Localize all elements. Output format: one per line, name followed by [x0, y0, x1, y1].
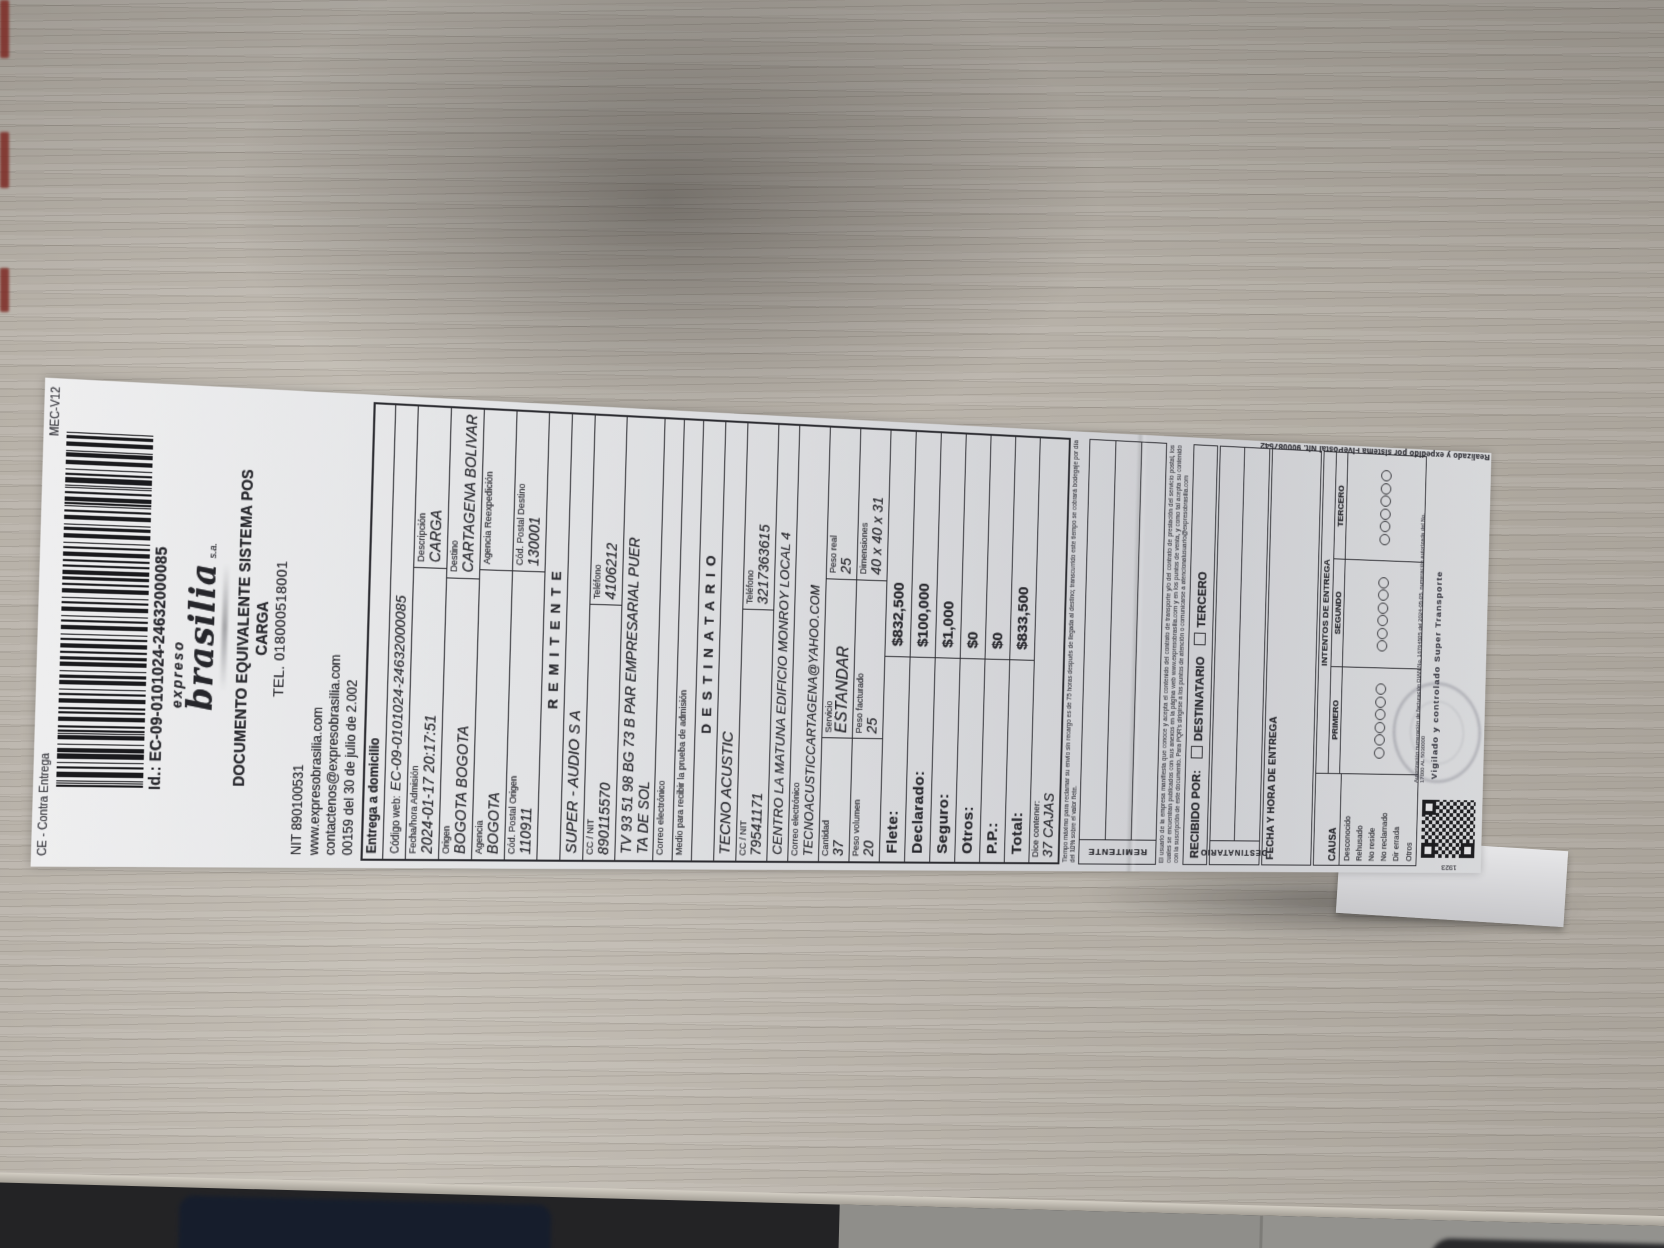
company-info: NIT 890100531 www.expresobrasilia.com co…	[288, 391, 369, 855]
brand-logo-suffix: s.a.	[207, 543, 219, 559]
sender-signature-label: REMITENTE	[1088, 846, 1147, 857]
cause-column: CAUSA Desconocido Rehusado No reside No …	[1313, 773, 1417, 865]
billed-weight-value: 25	[864, 717, 880, 733]
signature-lines	[1210, 447, 1269, 841]
service-value: ESTANDAR	[833, 645, 852, 733]
mark-circles	[1345, 453, 1425, 562]
cause-item: Otros	[1402, 775, 1417, 861]
cause-header: CAUSA	[1313, 774, 1341, 865]
delivery-datetime-box: FECHA Y HORA DE ENTREGA	[1261, 448, 1322, 865]
attempt-col-segundo: SEGUNDO	[1331, 560, 1423, 670]
brand-logo: expreso brasilia s.a.	[164, 385, 234, 868]
description-value: CARGA	[426, 509, 445, 562]
received-by-label: RECIBIDO POR:	[1188, 770, 1203, 858]
admission-value: 2024-01-17 20:17:51	[418, 714, 439, 854]
origin-value: BOGOTA BOGOTA	[451, 725, 472, 854]
sender-phone-value: 4106212	[602, 542, 620, 600]
delivery-attempts-table: CAUSA Desconocido Rehusado No reside No …	[1312, 451, 1426, 866]
shipment-table: Entrega a domicilio Código web: EC-09-01…	[360, 402, 1070, 864]
vol-weight-value: 20	[860, 840, 876, 856]
checkbox-icon	[1193, 632, 1205, 645]
recipient-signature-label: DESTINATARIO	[1200, 848, 1267, 858]
quantity-value: 37	[830, 840, 846, 856]
photo-scene: CE - Contra Entrega MEC-V12 Id.: EC-09-0…	[0, 0, 1664, 1248]
sender-ccnit-value: 890115570	[595, 782, 614, 855]
form-version-label: MEC-V12	[48, 386, 63, 436]
signature-lines	[1080, 440, 1166, 840]
checkbox-destinatario: DESTINATARIO	[1190, 656, 1206, 758]
recipient-phone-value: 3217363615	[754, 524, 772, 605]
agency-value: BOGOTA	[484, 792, 503, 854]
doc-type-label: CE - Contra Entrega	[36, 753, 53, 856]
dark-object-under-desk	[177, 1195, 552, 1248]
sender-signature-box: REMITENTE	[1078, 439, 1167, 865]
recipient-ccnit-value: 79541171	[747, 792, 765, 855]
barcode-icon	[56, 431, 153, 788]
web-code-value: EC-09-0101024-24632000085	[387, 595, 409, 791]
red-edge-mark	[0, 268, 9, 312]
real-weight-label: Peso real	[828, 433, 842, 574]
checkbox-icon	[1190, 746, 1202, 759]
billed-weight-label: Peso facturado	[854, 585, 868, 733]
postal-destination-value: 130001	[525, 516, 543, 566]
web-code-label: Código web:	[390, 795, 404, 853]
contents-value: 37 CAJAS	[1040, 793, 1057, 858]
form-corner-number: 1923	[1441, 863, 1457, 871]
destination-value: CARTAGENA BOLIVAR	[459, 414, 481, 573]
brand-logo-main: brasilia	[180, 562, 225, 711]
red-edge-mark	[0, 0, 9, 58]
postal-origin-value: 110911	[517, 807, 535, 854]
receipt-document: CE - Contra Entrega MEC-V12 Id.: EC-09-0…	[31, 378, 1492, 873]
recipient-signature-box: DESTINATARIO	[1208, 446, 1270, 866]
reshipment-agency-label: Agencia Reexpedición	[482, 415, 497, 564]
dimensions-value: 40 x 40 x 31	[868, 496, 886, 575]
checkbox-tercero: TERCERO	[1193, 571, 1209, 645]
receipt-rotated-wrap: CE - Contra Entrega MEC-V12 Id.: EC-09-0…	[31, 378, 1494, 873]
red-edge-mark	[0, 132, 9, 188]
real-weight-value: 25	[838, 557, 854, 574]
attempt-col-tercero: TERCERO	[1334, 453, 1426, 564]
cause-list: Desconocido Rehusado No reside No reclam…	[1339, 774, 1417, 865]
mark-circles	[1342, 560, 1422, 668]
qr-code-icon	[1421, 800, 1476, 858]
